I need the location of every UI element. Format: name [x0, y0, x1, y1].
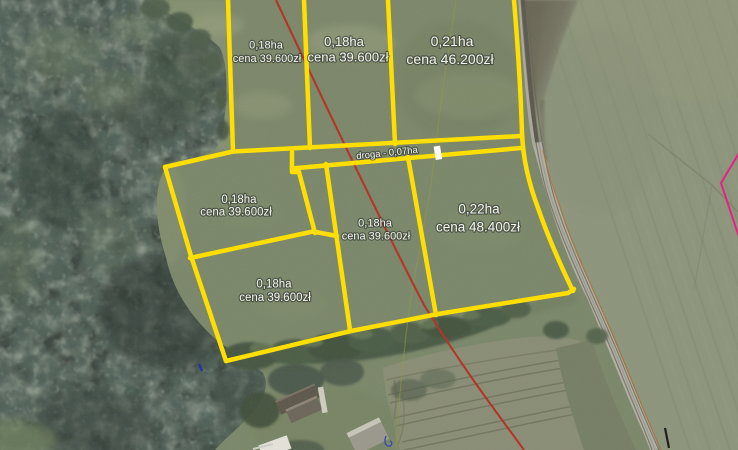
svg-text:0,18ha: 0,18ha [249, 40, 284, 52]
svg-text:0,18ha: 0,18ha [256, 279, 292, 291]
svg-text:cena 39.600zł: cena 39.600zł [200, 207, 272, 219]
svg-text:cena 39.600zł: cena 39.600zł [233, 53, 302, 65]
svg-text:cena 46.200zł: cena 46.200zł [406, 51, 494, 67]
svg-text:0,18ha: 0,18ha [221, 194, 257, 206]
svg-text:cena 39.600zł: cena 39.600zł [342, 231, 411, 243]
svg-text:0,21ha: 0,21ha [431, 33, 474, 49]
svg-text:cena 39.600zł: cena 39.600zł [239, 292, 311, 304]
svg-text:cena 48.400zł: cena 48.400zł [436, 220, 520, 235]
svg-text:0,22ha: 0,22ha [458, 202, 500, 217]
svg-text:0,18ha: 0,18ha [324, 34, 365, 49]
svg-text:0,18ha: 0,18ha [358, 218, 393, 230]
svg-text:cena 39.600zł: cena 39.600zł [308, 50, 389, 65]
